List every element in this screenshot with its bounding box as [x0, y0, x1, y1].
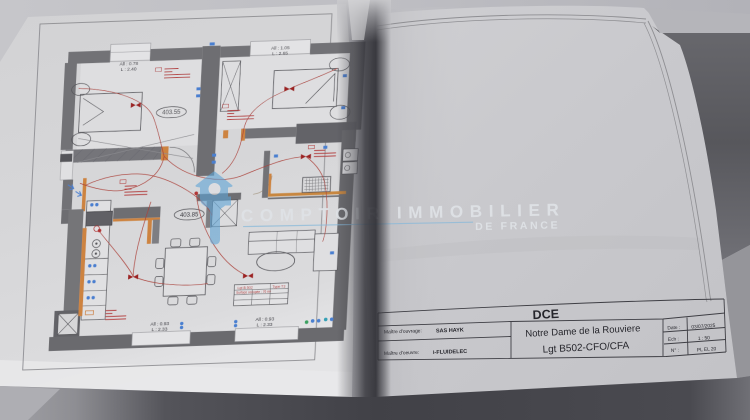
svg-text:Type T3: Type T3 [272, 284, 285, 288]
svg-text:N° :: N° : [671, 347, 679, 354]
svg-text:Ech :: Ech : [668, 336, 679, 343]
svg-text:DE FRANCE: DE FRANCE [475, 219, 560, 233]
svg-text:L : 2.65: L : 2.65 [272, 51, 288, 58]
svg-text:Date :: Date : [667, 325, 680, 332]
svg-text:i-FLUIDELEC: i-FLUIDELEC [433, 349, 467, 356]
svg-text:DCE: DCE [532, 307, 559, 322]
svg-text:403.85: 403.85 [180, 212, 199, 219]
svg-text:1 : 50: 1 : 50 [698, 335, 711, 342]
svg-text:L : 2.33: L : 2.33 [151, 326, 167, 333]
svg-text:SAS HAYK: SAS HAYK [436, 328, 464, 335]
svg-text:L : 2.33: L : 2.33 [256, 322, 272, 329]
svg-text:403.55: 403.55 [162, 110, 181, 117]
svg-text:L : 2.40: L : 2.40 [120, 67, 136, 74]
